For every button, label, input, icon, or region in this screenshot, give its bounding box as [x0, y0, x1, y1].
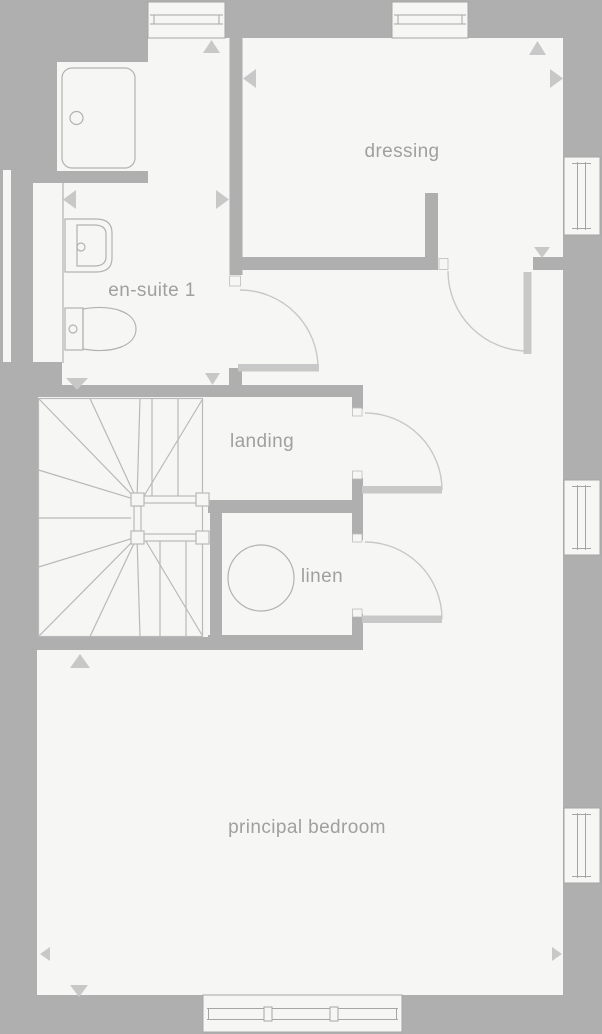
door-stop: [353, 408, 363, 416]
top-left-window: [148, 2, 225, 38]
floor-plan: dressing en-suite 1 landing linen princi…: [0, 0, 602, 1034]
right-lower-window: [564, 808, 600, 883]
room-label-principal-bedroom: principal bedroom: [228, 817, 386, 839]
top-right-window: [392, 2, 468, 38]
wall-linen-west: [210, 500, 222, 648]
wall-bedroom-north: [0, 637, 363, 650]
door-stop: [353, 534, 363, 542]
room-label-dressing: dressing: [364, 141, 439, 163]
landing-door-leaf: [362, 486, 442, 494]
floor-plan-drawing: [0, 0, 602, 1034]
room-label-landing: landing: [230, 431, 294, 453]
newel-post: [131, 531, 144, 544]
wall-linen-north: [208, 500, 363, 513]
newel-post: [196, 493, 209, 506]
door-stop: [439, 259, 448, 270]
door-stop: [230, 276, 241, 286]
floor-landing-stairs: [38, 395, 363, 650]
door-stop: [353, 609, 363, 617]
wall-left-upper: [0, 38, 57, 181]
ensuite-door-leaf: [238, 364, 319, 372]
wall-dressing-west: [230, 38, 243, 275]
wall-landing-door-stub-north: [352, 385, 363, 409]
right-middle-window: [564, 480, 600, 555]
wall-dressing-south: [238, 257, 438, 270]
bottom-window: [203, 995, 402, 1032]
wall-dressing-partition: [425, 193, 438, 270]
wall-dressing-door-east: [533, 257, 563, 270]
door-stop: [353, 471, 363, 479]
wall-shower-bottom: [12, 171, 148, 183]
floor-north-strip: [148, 38, 243, 385]
right-upper-window: [564, 157, 600, 235]
linen-door-leaf: [362, 616, 442, 624]
room-label-en-suite-1: en-suite 1: [108, 280, 195, 302]
newel-post: [196, 531, 209, 544]
dressing-door-leaf: [524, 272, 532, 354]
wall-landing-top: [12, 385, 358, 397]
wall-reveal-left: [3, 170, 11, 362]
room-label-linen: linen: [301, 566, 343, 588]
newel-post: [131, 493, 144, 506]
